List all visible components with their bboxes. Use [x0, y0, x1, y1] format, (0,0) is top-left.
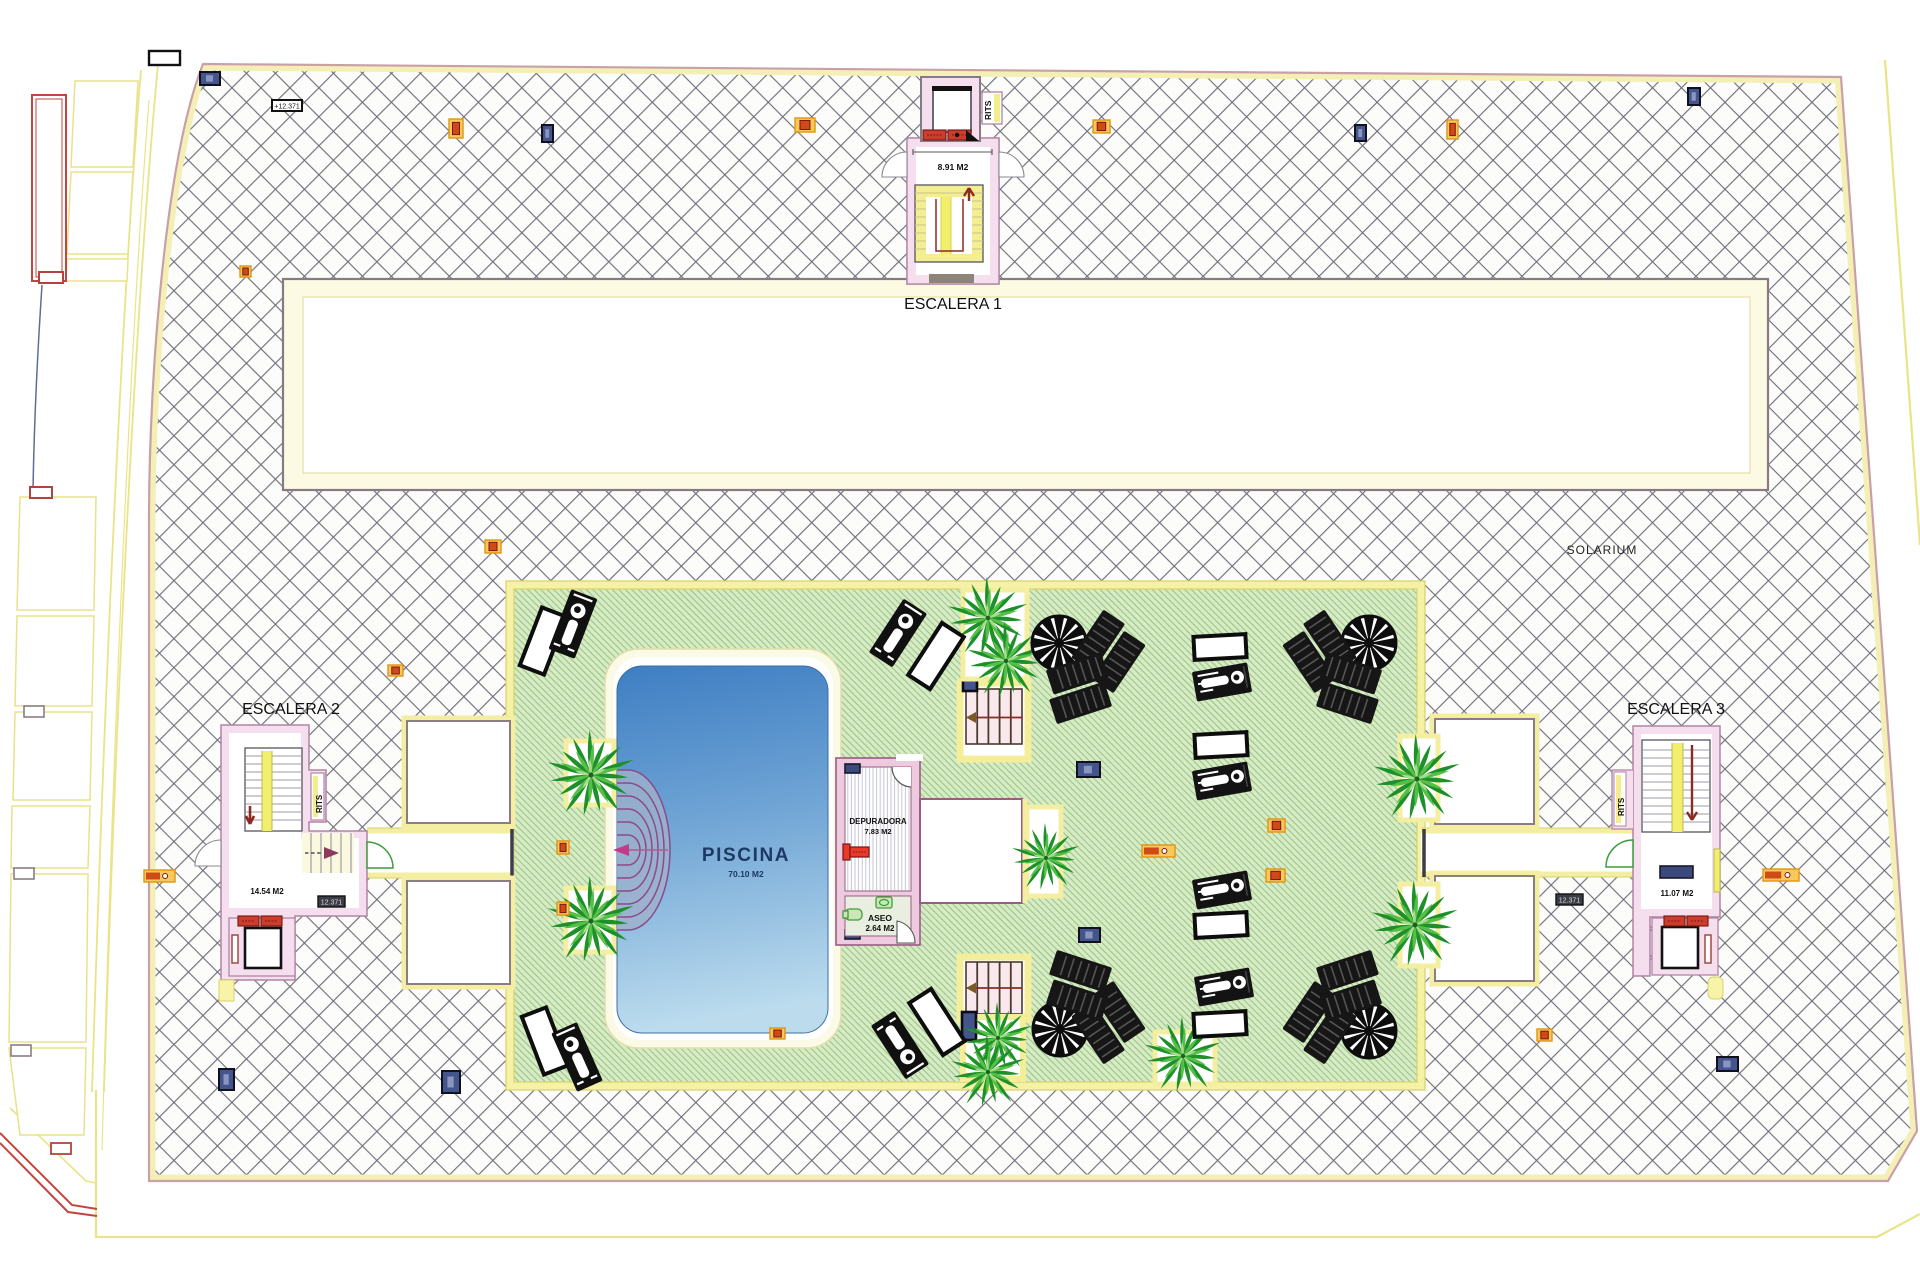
svg-text:RITS: RITS — [983, 100, 993, 120]
svg-text:PISCINA: PISCINA — [702, 845, 790, 866]
svg-text:ESCALERA 1: ESCALERA 1 — [904, 296, 1002, 313]
svg-text:+12.371: +12.371 — [274, 104, 300, 111]
svg-text:7.83 M2: 7.83 M2 — [864, 827, 891, 836]
svg-text:70.10 M2: 70.10 M2 — [728, 869, 764, 879]
svg-text:DEPURADORA: DEPURADORA — [849, 817, 907, 826]
svg-text:RITS: RITS — [315, 794, 324, 813]
svg-text:2.64 M2: 2.64 M2 — [866, 924, 895, 933]
svg-text:12.371: 12.371 — [1559, 898, 1581, 905]
svg-text:SOLARIUM: SOLARIUM — [1567, 543, 1638, 557]
svg-text:RITS: RITS — [1617, 797, 1626, 816]
svg-text:11.07 M2: 11.07 M2 — [1661, 889, 1694, 898]
svg-text:12.371: 12.371 — [321, 900, 343, 907]
svg-text:ASEO: ASEO — [868, 913, 892, 923]
svg-text:ESCALERA 2: ESCALERA 2 — [242, 701, 340, 718]
svg-text:8.91 M2: 8.91 M2 — [938, 162, 969, 172]
svg-text:ESCALERA 3: ESCALERA 3 — [1627, 701, 1725, 718]
svg-text:14.54 M2: 14.54 M2 — [250, 887, 284, 896]
